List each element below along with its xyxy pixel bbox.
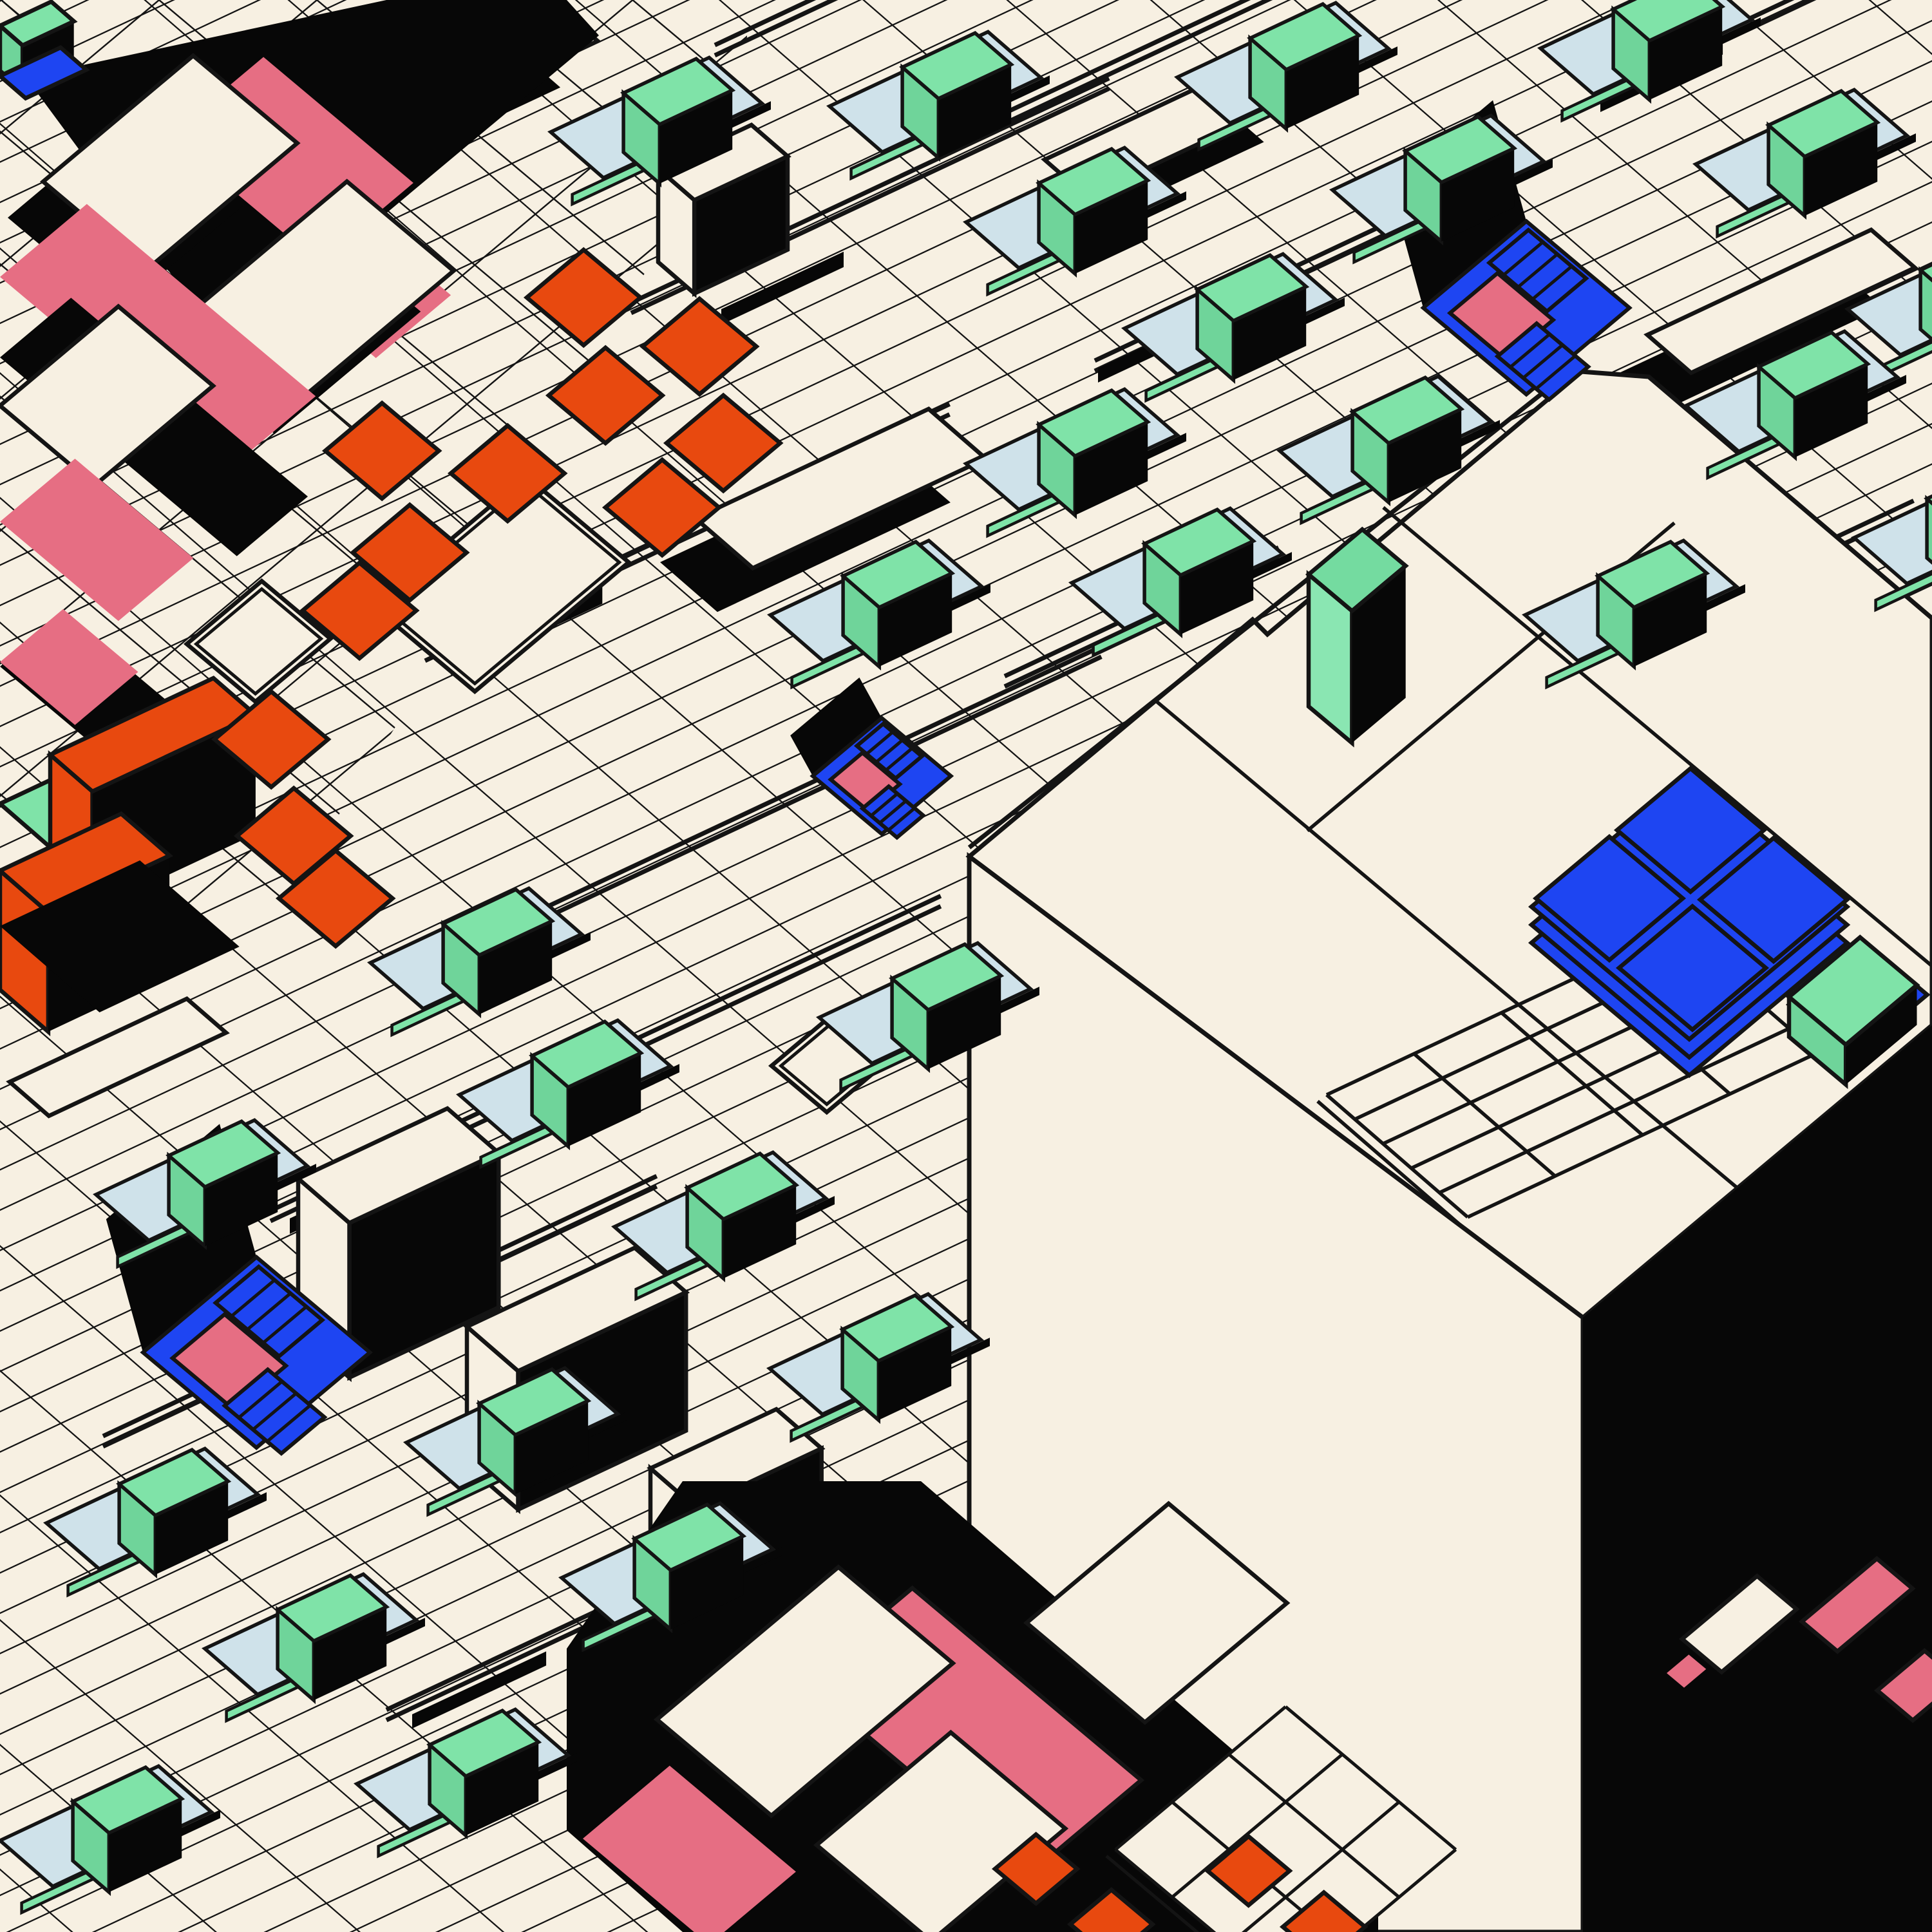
artwork-canvas <box>0 0 1932 1932</box>
isometric-artwork <box>0 0 1932 1932</box>
